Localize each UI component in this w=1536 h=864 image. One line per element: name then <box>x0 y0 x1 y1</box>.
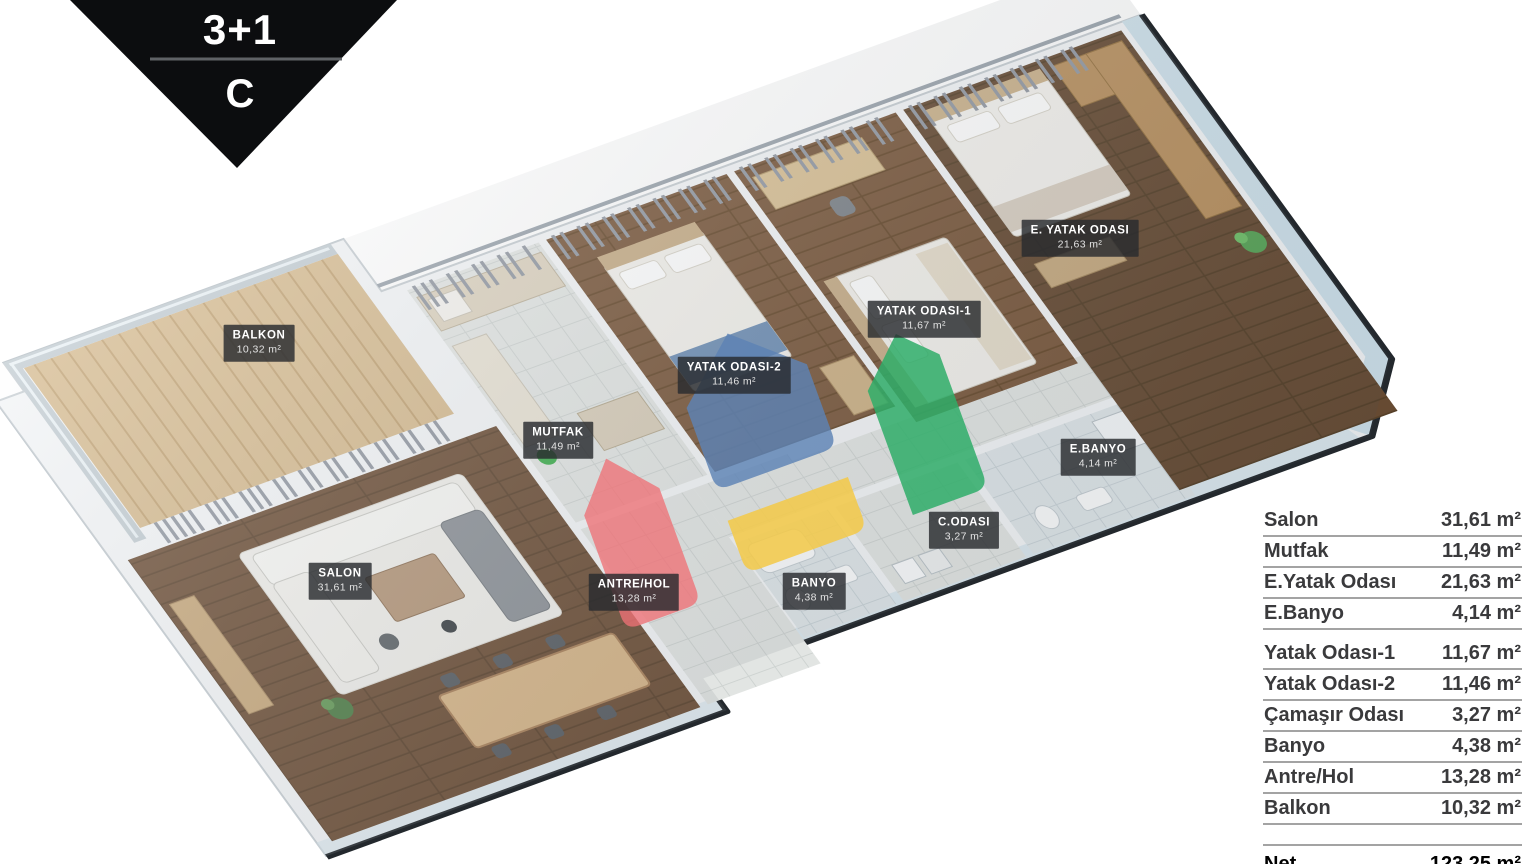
table-row-yatak-odasi-1: Yatak Odası-1 11,67 m² <box>1263 639 1522 670</box>
table-row-balkon: Balkon 10,32 m² <box>1263 794 1522 825</box>
room-label-antre-hol: ANTRE/HOL 13,28 m² <box>589 574 679 611</box>
floorplan-page: 3+1 C BALKON 10,32 m² SALON 31,61 m² MUT… <box>0 0 1536 864</box>
table-row-banyo: Banyo 4,38 m² <box>1263 732 1522 763</box>
area-table: Salon 31,61 m² Mutfak 11,49 m² E.Yatak O… <box>1263 506 1522 825</box>
unit-block-label: C <box>160 72 320 117</box>
table-gap <box>1263 630 1522 639</box>
room-label-camasir-odasi: C.ODASI 3,27 m² <box>929 512 999 549</box>
room-label-mutfak: MUTFAK 11,49 m² <box>523 422 593 459</box>
unit-type-badge: 3+1 C <box>0 0 440 190</box>
area-table-net: Net 123,25 m² <box>1263 844 1522 864</box>
table-row-mutfak: Mutfak 11,49 m² <box>1263 537 1522 568</box>
room-label-salon: SALON 31,61 m² <box>309 563 372 600</box>
table-row-salon: Salon 31,61 m² <box>1263 506 1522 537</box>
table-row-antre-hol: Antre/Hol 13,28 m² <box>1263 763 1522 794</box>
table-row-net: Net 123,25 m² <box>1263 844 1522 864</box>
room-label-eyatak-odasi: E. YATAK ODASI 21,63 m² <box>1022 220 1139 257</box>
table-row-ebanyo: E.Banyo 4,14 m² <box>1263 599 1522 630</box>
unit-type-label: 3+1 <box>160 6 320 54</box>
room-label-yatak-odasi-2: YATAK ODASI-2 11,46 m² <box>678 357 791 394</box>
room-label-balkon: BALKON 10,32 m² <box>224 325 295 362</box>
table-row-eyatak-odasi: E.Yatak Odası 21,63 m² <box>1263 568 1522 599</box>
room-label-yatak-odasi-1: YATAK ODASI-1 11,67 m² <box>868 301 981 338</box>
room-label-banyo: BANYO 4,38 m² <box>783 573 846 610</box>
room-label-ebanyo: E.BANYO 4,14 m² <box>1061 439 1136 476</box>
table-row-camasir-odasi: Çamaşır Odası 3,27 m² <box>1263 701 1522 732</box>
table-row-yatak-odasi-2: Yatak Odası-2 11,46 m² <box>1263 670 1522 701</box>
